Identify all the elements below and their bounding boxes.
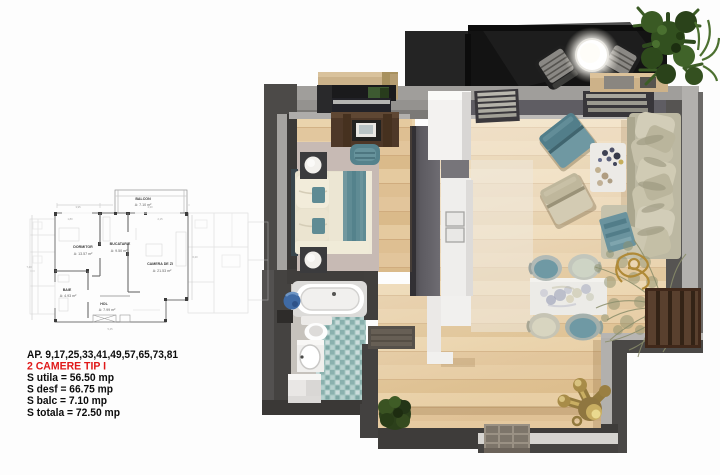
svg-text:BAIE: BAIE [63,288,72,292]
svg-text:7,40: 7,40 [26,265,32,269]
svg-text:CAMERA DE ZI: CAMERA DE ZI [147,262,173,266]
svg-text:AP. 9,17,25,33,41,49,57,65,73,: AP. 9,17,25,33,41,49,57,65,73,81 [27,349,178,361]
svg-text:1,80: 1,80 [67,217,73,221]
svg-text:BUCATARIE: BUCATARIE [110,242,131,246]
svg-text:DORMITOR: DORMITOR [73,245,93,249]
svg-text:HOL: HOL [100,302,108,306]
svg-text:A: 9.50 m²: A: 9.50 m² [111,249,128,253]
svg-text:5,45: 5,45 [107,327,113,331]
svg-text:S totala = 72.50 mp: S totala = 72.50 mp [27,407,120,419]
svg-text:S balc = 7.10 mp: S balc = 7.10 mp [27,395,107,407]
svg-text:A: 4.93 m²: A: 4.93 m² [60,294,77,298]
svg-text:S desf = 66.75 mp: S desf = 66.75 mp [27,384,113,396]
svg-text:2 CAMERE TIP I: 2 CAMERE TIP I [27,361,106,373]
svg-text:A: 7.10 m²: A: 7.10 m² [135,203,152,207]
svg-text:A: 7.99 m²: A: 7.99 m² [99,308,116,312]
svg-text:S utila = 56.50 mp: S utila = 56.50 mp [27,372,114,384]
svg-text:6,20: 6,20 [192,255,198,259]
svg-text:A: 21.53 m²: A: 21.53 m² [153,269,172,273]
svg-text:BALCON: BALCON [135,197,151,201]
svg-text:A: 13.57 m²: A: 13.57 m² [74,252,93,256]
svg-text:3,95: 3,95 [75,205,81,209]
svg-text:2,15: 2,15 [157,217,163,221]
